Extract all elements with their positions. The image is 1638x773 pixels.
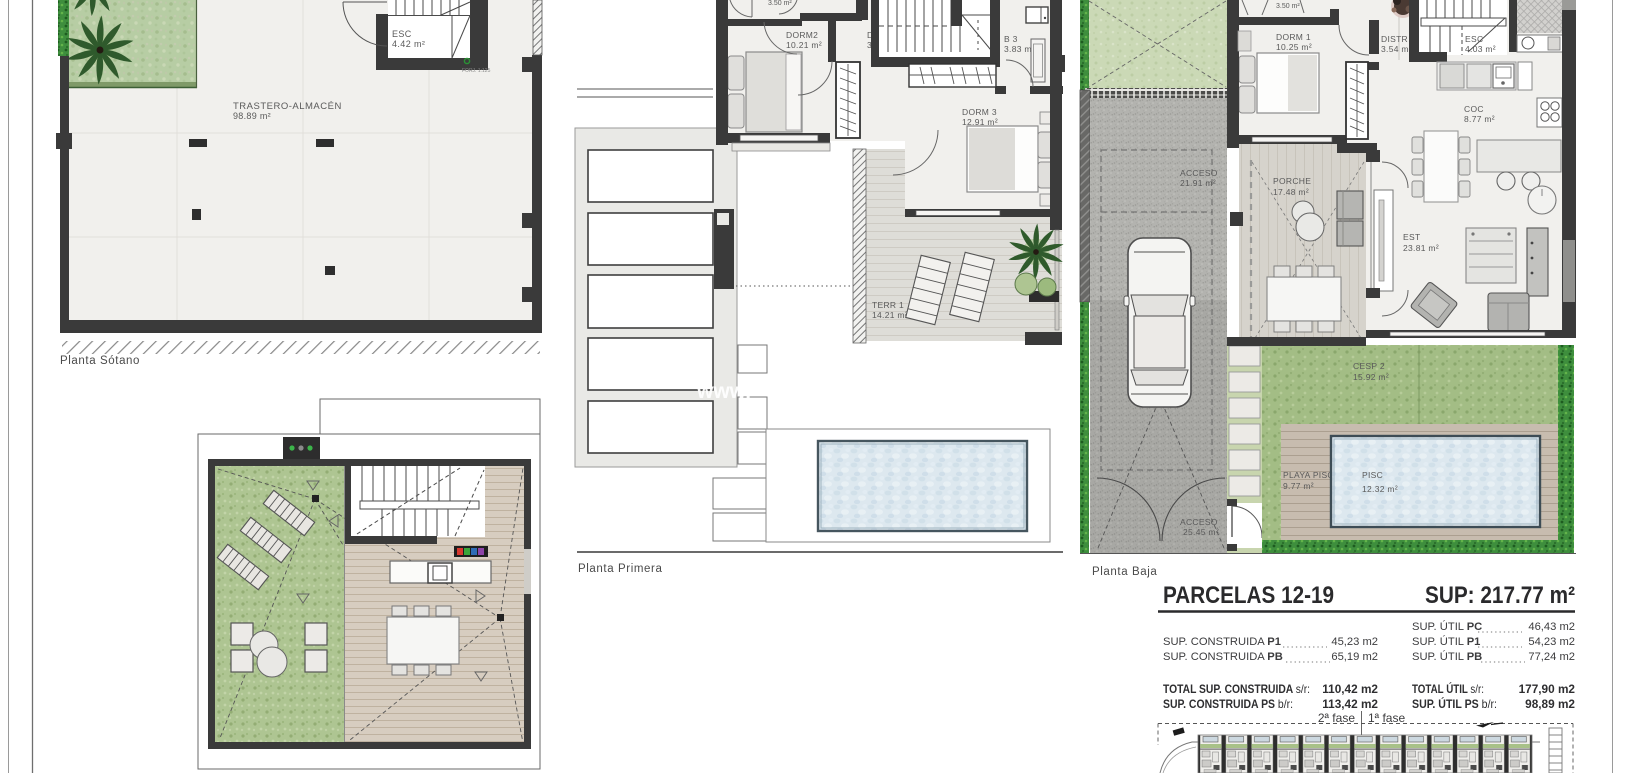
svg-text:DORM 1: DORM 1 xyxy=(1276,32,1311,42)
svg-text:3.50 m²: 3.50 m² xyxy=(1276,3,1300,10)
svg-text:3.50 m²: 3.50 m² xyxy=(768,0,792,7)
svg-text:ESC: ESC xyxy=(1465,34,1483,44)
svg-text:TOTAL SUP. CONSTRUIDA s/r:: TOTAL SUP. CONSTRUIDA s/r: xyxy=(1163,682,1310,696)
svg-text:PORCHE: PORCHE xyxy=(1273,176,1311,186)
svg-text:17.48 m²: 17.48 m² xyxy=(1273,187,1309,197)
svg-text:www.: www. xyxy=(696,380,751,403)
svg-text:DORM2: DORM2 xyxy=(786,30,818,40)
svg-text:Planta Sótano: Planta Sótano xyxy=(60,355,140,367)
svg-text:TERR 1: TERR 1 xyxy=(872,300,904,310)
svg-text:23.81 m²: 23.81 m² xyxy=(1403,243,1439,253)
svg-text:65,19 m2: 65,19 m2 xyxy=(1331,651,1378,663)
svg-text:15.92 m²: 15.92 m² xyxy=(1353,372,1389,382)
svg-text:CESP 2: CESP 2 xyxy=(1353,361,1385,371)
svg-text:10.21 m²: 10.21 m² xyxy=(786,40,822,50)
svg-text:21.91 m²: 21.91 m² xyxy=(1180,178,1216,188)
svg-text:TOTAL ÚTIL s/r:: TOTAL ÚTIL s/r: xyxy=(1412,682,1484,696)
svg-text:46,43 m2: 46,43 m2 xyxy=(1528,621,1575,633)
svg-text:EST: EST xyxy=(1403,232,1420,242)
svg-text:4.03 m²: 4.03 m² xyxy=(1465,44,1496,54)
svg-text:1ª fase: 1ª fase xyxy=(1368,711,1405,725)
svg-text:45,23 m2: 45,23 m2 xyxy=(1331,636,1378,648)
svg-text:113,42 m2: 113,42 m2 xyxy=(1322,697,1378,711)
svg-text:12.32 m²: 12.32 m² xyxy=(1362,484,1398,494)
svg-text:PARCELAS 12-19: PARCELAS 12-19 xyxy=(1163,582,1334,609)
svg-text:9.77 m²: 9.77 m² xyxy=(1283,481,1314,491)
svg-text:SUP: 217.77 m²: SUP: 217.77 m² xyxy=(1425,582,1575,609)
svg-text:98.89 m²: 98.89 m² xyxy=(233,111,271,121)
svg-text:SUP. CONSTRUIDA PS b/r:: SUP. CONSTRUIDA PS b/r: xyxy=(1163,697,1293,711)
svg-text:SUP. ÚTIL P1: SUP. ÚTIL P1 xyxy=(1412,635,1480,648)
svg-text:110,42 m2: 110,42 m2 xyxy=(1322,682,1378,696)
svg-text:SUP. ÚTIL PC: SUP. ÚTIL PC xyxy=(1412,620,1482,633)
svg-text:SUP. CONSTRUIDA P1: SUP. CONSTRUIDA P1 xyxy=(1163,636,1281,648)
svg-text:COC: COC xyxy=(1464,104,1484,114)
svg-text:54,23 m2: 54,23 m2 xyxy=(1528,636,1575,648)
svg-text:177,90 m2: 177,90 m2 xyxy=(1519,682,1576,696)
svg-text:PLAYA PISC: PLAYA PISC xyxy=(1283,470,1334,480)
svg-text:DISTR: DISTR xyxy=(1381,34,1408,44)
svg-text:10.25 m²: 10.25 m² xyxy=(1276,42,1312,52)
svg-text:ACCESO: ACCESO xyxy=(1180,517,1218,527)
svg-text:DORM 3: DORM 3 xyxy=(962,107,997,117)
svg-text:25.45 m²: 25.45 m² xyxy=(1183,527,1219,537)
svg-text:8.77 m²: 8.77 m² xyxy=(1464,114,1495,124)
svg-text:B 3: B 3 xyxy=(1004,34,1018,44)
svg-text:3.54 m²: 3.54 m² xyxy=(1381,44,1412,54)
svg-text:Planta Baja: Planta Baja xyxy=(1092,566,1157,578)
svg-text:14.21 m²: 14.21 m² xyxy=(872,310,908,320)
svg-text:FORJ. 1:125: FORJ. 1:125 xyxy=(462,68,491,74)
svg-text:SUP. ÚTIL PB: SUP. ÚTIL PB xyxy=(1412,650,1482,663)
svg-text:2ª fase: 2ª fase xyxy=(1318,711,1355,725)
svg-text:SUP. ÚTIL PS b/r:: SUP. ÚTIL PS b/r: xyxy=(1412,697,1497,711)
svg-text:77,24 m2: 77,24 m2 xyxy=(1528,651,1575,663)
svg-text:4.42 m²: 4.42 m² xyxy=(392,39,425,49)
svg-text:SUP. CONSTRUIDA PB: SUP. CONSTRUIDA PB xyxy=(1163,651,1283,663)
svg-text:98,89 m2: 98,89 m2 xyxy=(1525,697,1575,711)
svg-text:PISC: PISC xyxy=(1362,470,1383,480)
svg-text:Planta Primera: Planta Primera xyxy=(578,563,662,575)
svg-text:ESC: ESC xyxy=(392,29,412,39)
svg-text:3.83 m²: 3.83 m² xyxy=(1004,44,1035,54)
svg-text:ACCESO: ACCESO xyxy=(1180,168,1218,178)
